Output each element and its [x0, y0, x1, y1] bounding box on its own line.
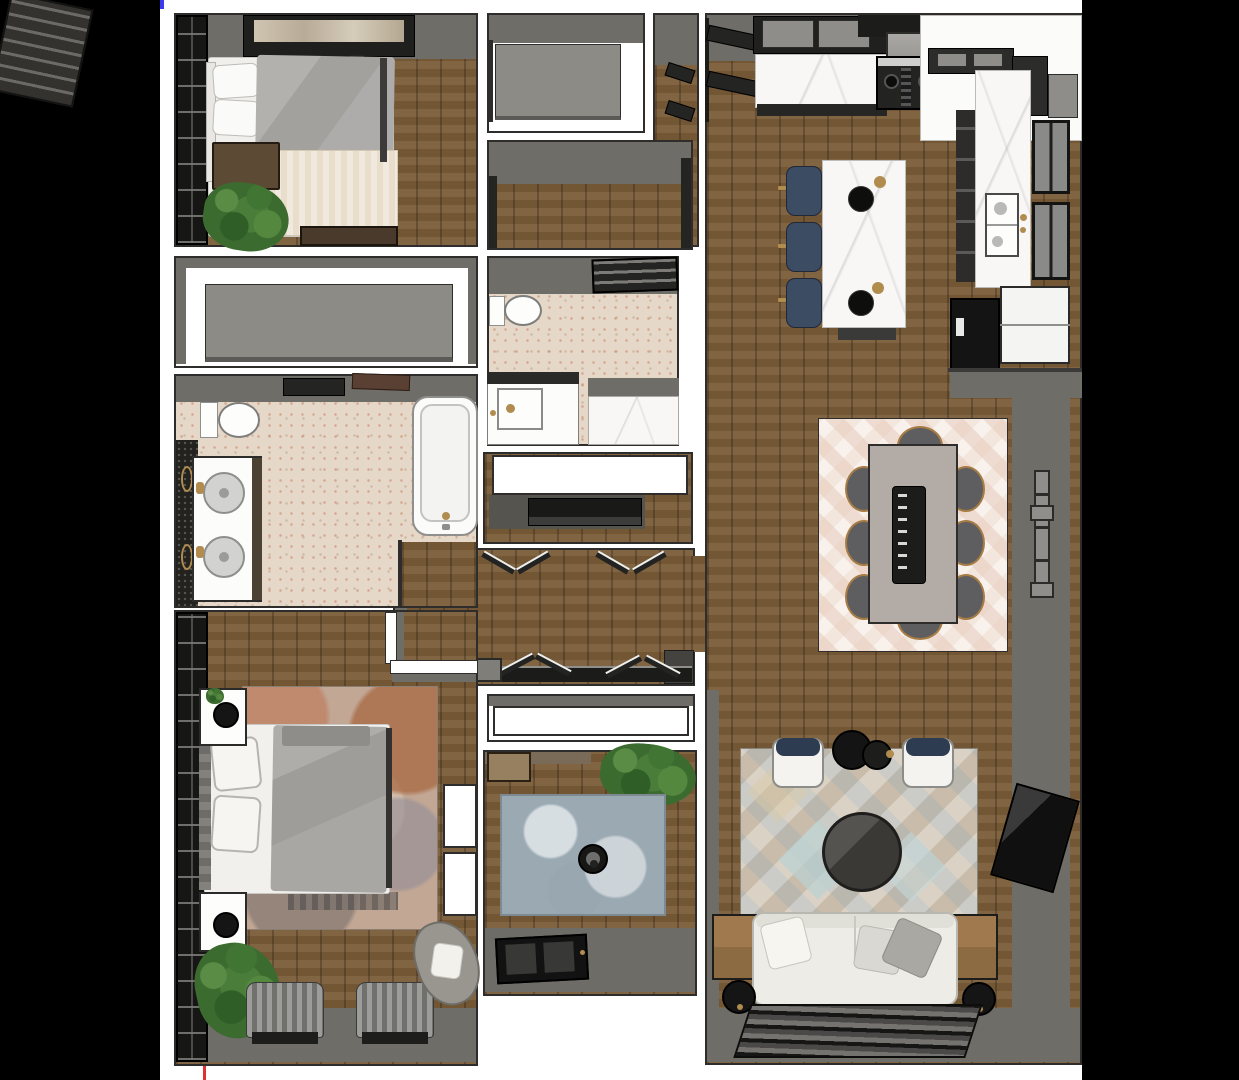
closet-b-side: [176, 268, 186, 364]
closet-a-shelf: [495, 44, 621, 120]
lower-cabinet-front: [757, 104, 887, 116]
stool-leg: [778, 244, 786, 248]
kitchen-window: [1032, 202, 1070, 280]
utility-counter: [492, 455, 688, 495]
entry-console: [487, 752, 531, 782]
sink-drain: [219, 552, 229, 562]
toilet-1-bowl: [218, 402, 260, 438]
bench-base: [362, 1032, 428, 1044]
walk-in-shower-floor: [588, 396, 679, 445]
cabinet-slit: [974, 54, 1002, 66]
vanity-2-edge: [487, 372, 579, 384]
sink-basin-mark: [992, 236, 1003, 247]
cabinet-handle: [956, 318, 964, 336]
closet-b-panel: [205, 284, 453, 362]
tall-cabinet: [950, 298, 1000, 374]
pleated-bench: [356, 982, 434, 1038]
duvet-fold: [282, 726, 370, 746]
bar-stool: [786, 278, 822, 328]
master-entry-wall: [385, 612, 397, 664]
stove-grate: [901, 68, 911, 106]
vanity-wood-edge: [252, 458, 262, 600]
rug-dark-band: [288, 892, 398, 910]
foot-bench: [300, 226, 398, 246]
wall-art-canvas: [254, 20, 404, 42]
wall-shelf-knob: [1030, 582, 1054, 598]
closet-door-panel: [443, 784, 477, 848]
blue-corner-tick: [160, 0, 164, 9]
navy-cushion: [906, 738, 950, 756]
wall-shelf-bar: [1034, 470, 1050, 594]
bathroom-2-wall-shelf: [591, 257, 678, 294]
coat-closet-wall: [489, 696, 693, 706]
sink-drain: [219, 488, 229, 498]
walk-in-trim: [489, 176, 497, 248]
lamp-gold: [737, 1004, 743, 1010]
master-entry-wall-h: [390, 660, 478, 674]
door-panel-inset: [505, 943, 537, 975]
closet-b-wall: [176, 258, 476, 268]
master-foot-rail: [386, 728, 392, 888]
master-entry-wall-face: [397, 612, 404, 664]
red-bottom-tick: [203, 1064, 206, 1080]
bed-1-side-rail: [380, 58, 387, 162]
closet-door-panel: [443, 852, 477, 916]
corner-appliance: [1048, 74, 1078, 118]
decor-gold: [874, 176, 886, 188]
closet-a-wall: [489, 15, 643, 43]
cabinet-slit: [938, 54, 966, 66]
kitchen-window: [1032, 120, 1070, 194]
bed-1-pillow: [212, 62, 260, 99]
nightstand-flowers: [206, 688, 224, 704]
door-knob: [580, 950, 585, 955]
master-duvet: [271, 725, 390, 893]
towel-bar: [283, 378, 345, 396]
round-coffee-table: [822, 812, 902, 892]
closet-b-side: [468, 268, 476, 364]
bed-1-pillow: [212, 99, 260, 137]
vanity-2-basin: [497, 388, 543, 430]
media-console: [0, 0, 93, 108]
stool-leg: [778, 186, 786, 190]
kitchen-faucet-handle: [1020, 227, 1026, 233]
pleated-bench: [246, 982, 324, 1038]
kitchen-faucet: [1020, 214, 1027, 221]
faucet-2-handle: [490, 410, 496, 416]
gold-faucet: [196, 482, 204, 494]
master-pillow: [210, 794, 262, 853]
toilet-2-tank: [489, 296, 505, 326]
door-panel: [352, 373, 411, 391]
linen-nook-wall: [655, 15, 697, 65]
tub-faucet: [442, 512, 450, 520]
accent-chair-pillow: [430, 942, 464, 980]
sink-divider: [987, 224, 1017, 226]
toilet-2-bowl: [504, 295, 542, 326]
coat-closet-shelf: [493, 706, 689, 736]
round-stand-dot: [590, 860, 598, 868]
burner: [884, 74, 899, 89]
living-window-band: [733, 1004, 983, 1058]
decor-gold: [872, 282, 884, 294]
bar-stool: [786, 222, 822, 272]
bathtub-basin: [420, 404, 470, 522]
walk-in-wall: [489, 142, 691, 184]
master-headboard: [199, 728, 211, 890]
shower-wall: [588, 378, 679, 396]
closet-a-edge: [489, 40, 493, 122]
faucet-2: [506, 404, 515, 413]
kitchen-bottom-wall: [950, 372, 1082, 398]
sink-basin-mark: [994, 202, 1007, 215]
bench-base: [252, 1032, 318, 1044]
bath-door-nook: [402, 542, 476, 606]
cabinet-run: [956, 110, 976, 282]
cabinet-panel: [762, 20, 814, 48]
navy-cushion: [776, 738, 820, 756]
kitchen-counter: [755, 54, 887, 108]
table-lamp: [213, 702, 239, 728]
toilet-1-tank: [200, 402, 218, 438]
door-panel-inset: [543, 941, 575, 973]
master-entry-wall-h-face: [392, 674, 476, 682]
media-appliance: [528, 498, 642, 526]
gold-faucet: [196, 546, 204, 558]
runner-slats: [898, 492, 907, 578]
walk-in-trim: [681, 158, 691, 248]
stool-leg: [778, 298, 786, 302]
decor-bowl: [848, 290, 874, 316]
bar-stool: [786, 166, 822, 216]
floor-plan-page: [0, 0, 1239, 1080]
table-lamp: [213, 912, 239, 938]
wall-shelf-knob: [1030, 505, 1054, 521]
side-table-gold: [886, 750, 894, 758]
decor-bowl: [848, 186, 874, 212]
tub-drain: [442, 524, 450, 530]
refrigerator-split: [1000, 324, 1070, 326]
